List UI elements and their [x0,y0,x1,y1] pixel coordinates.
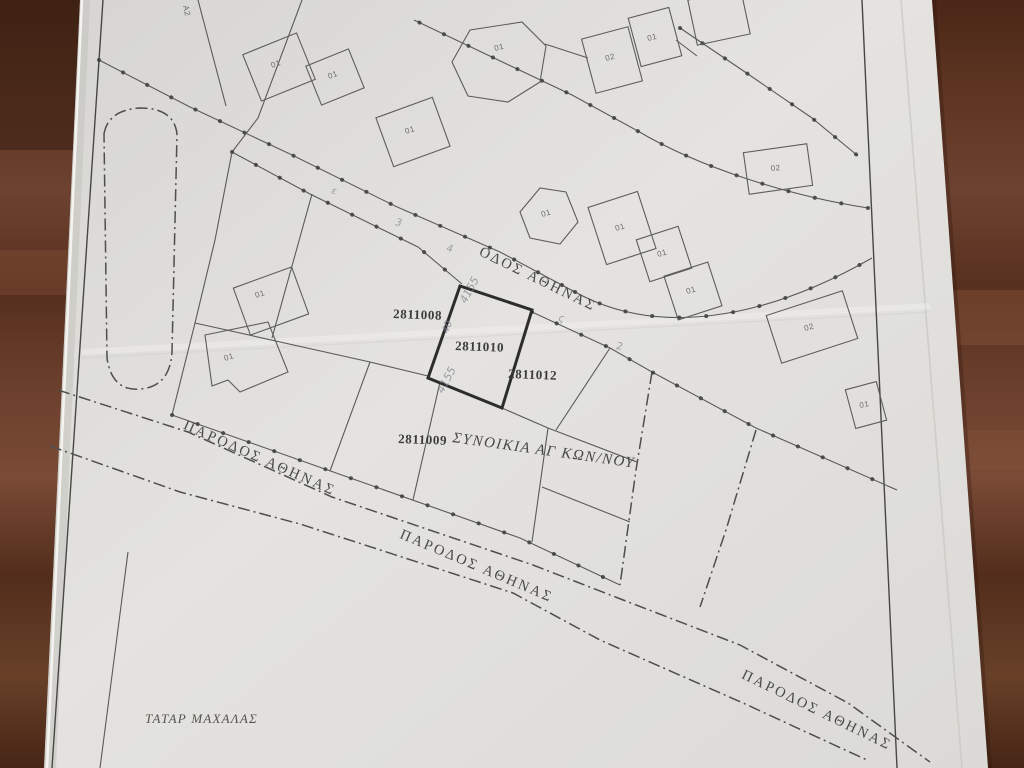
parcel-number-2811009: 2811009 [398,431,447,448]
photo-of-cadastral-map: 01 01 01 01 02 01 01 01 01 01 02 02 01 0… [0,0,1024,768]
paper-sheet [44,0,988,768]
parcel-number-2811008: 2811008 [393,306,442,323]
parcel-number-2811010: 2811010 [455,338,504,355]
cadastral-map-canvas: 01 01 01 01 02 01 01 01 01 01 02 02 01 0… [0,0,1024,768]
building-label: 02 [770,163,781,173]
parcel-number-2811012: 2811012 [508,366,557,383]
area-label-tatar-machalas: ΤΑΤΑΡ ΜΑΧΑΛΑΣ [145,711,258,726]
